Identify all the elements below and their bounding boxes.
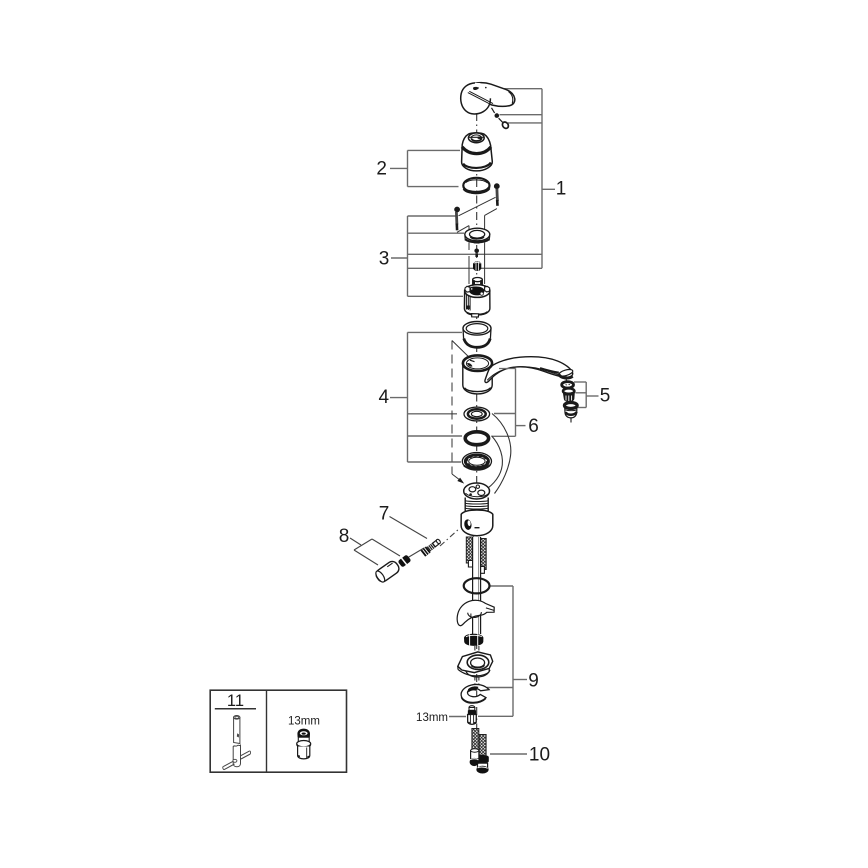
svg-text:7: 7 (379, 504, 390, 525)
svg-text:13mm: 13mm (288, 716, 320, 728)
svg-text:6: 6 (528, 416, 539, 437)
svg-text:9: 9 (528, 671, 539, 692)
svg-text:11: 11 (227, 692, 244, 710)
svg-text:13mm: 13mm (416, 712, 448, 724)
svg-text:1: 1 (556, 179, 567, 200)
svg-text:10: 10 (529, 745, 550, 766)
svg-text:2: 2 (376, 159, 387, 180)
svg-text:5: 5 (600, 386, 611, 407)
svg-text:8: 8 (339, 526, 350, 547)
svg-text:3: 3 (379, 249, 390, 270)
svg-text:4: 4 (379, 387, 390, 408)
